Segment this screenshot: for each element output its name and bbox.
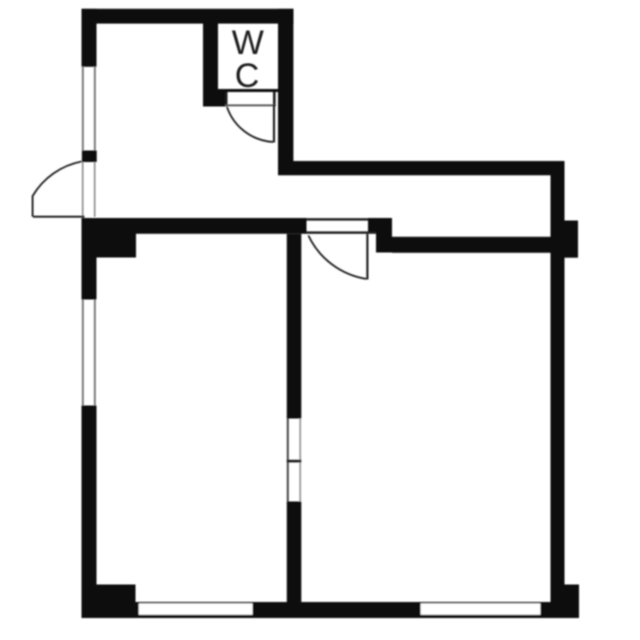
svg-text:C: C bbox=[235, 57, 260, 95]
